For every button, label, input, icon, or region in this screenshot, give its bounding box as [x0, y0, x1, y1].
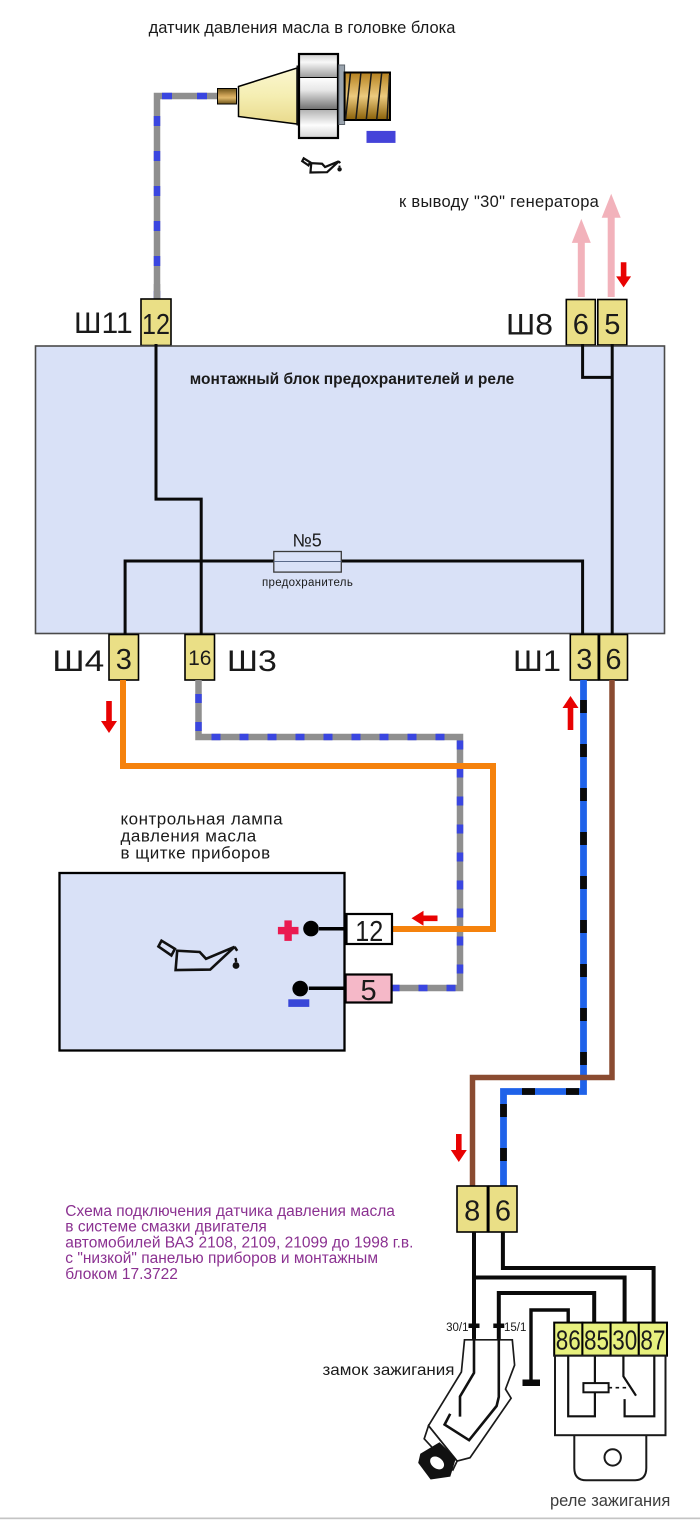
svg-text:монтажный блок предохранителей: монтажный блок предохранителей и реле	[190, 371, 515, 388]
svg-text:6: 6	[605, 644, 621, 676]
svg-text:12: 12	[142, 309, 170, 341]
svg-text:в системе смазки двигателя: в системе смазки двигателя	[65, 1219, 267, 1236]
svg-text:12: 12	[355, 916, 383, 948]
svg-text:3: 3	[576, 644, 592, 676]
svg-text:3: 3	[116, 644, 132, 676]
svg-text:16: 16	[188, 647, 211, 670]
svg-text:30: 30	[612, 1324, 637, 1355]
svg-text:к выводу "30" генератора: к выводу "30" генератора	[399, 193, 600, 211]
svg-text:Ш4: Ш4	[52, 645, 104, 678]
svg-text:Ш11: Ш11	[74, 307, 133, 340]
svg-text:15/1: 15/1	[504, 1322, 526, 1334]
svg-text:датчик давления масла в головк: датчик давления масла в головке блока	[149, 19, 457, 37]
svg-text:85: 85	[584, 1324, 609, 1355]
svg-text:Схема подключения датчика давл: Схема подключения датчика давления масла	[65, 1203, 395, 1220]
svg-text:блоком 17.3722: блоком 17.3722	[65, 1266, 178, 1283]
svg-text:с "низкой" панелью приборов и: с "низкой" панелью приборов и монтажным	[65, 1250, 378, 1267]
svg-text:5: 5	[361, 975, 377, 1007]
svg-text:реле зажигания: реле зажигания	[550, 1492, 670, 1510]
svg-text:Ш8: Ш8	[506, 309, 553, 342]
svg-text:автомобилей ВАЗ 2108, 2109, 21: автомобилей ВАЗ 2108, 2109, 21099 до 199…	[65, 1235, 413, 1252]
svg-text:86: 86	[556, 1324, 581, 1355]
svg-text:предохранитель: предохранитель	[262, 577, 353, 589]
svg-text:87: 87	[640, 1324, 665, 1355]
svg-text:5: 5	[604, 309, 620, 341]
svg-text:Ш1: Ш1	[513, 645, 561, 678]
svg-text:Ш3: Ш3	[227, 645, 277, 678]
svg-text:30/1: 30/1	[446, 1322, 468, 1334]
svg-text:8: 8	[464, 1196, 480, 1228]
svg-text:6: 6	[573, 309, 589, 341]
svg-text:6: 6	[495, 1196, 511, 1228]
svg-text:в щитке приборов: в щитке приборов	[121, 844, 271, 863]
svg-text:замок зажигания: замок зажигания	[323, 1362, 455, 1379]
svg-text:№5: №5	[293, 531, 322, 551]
